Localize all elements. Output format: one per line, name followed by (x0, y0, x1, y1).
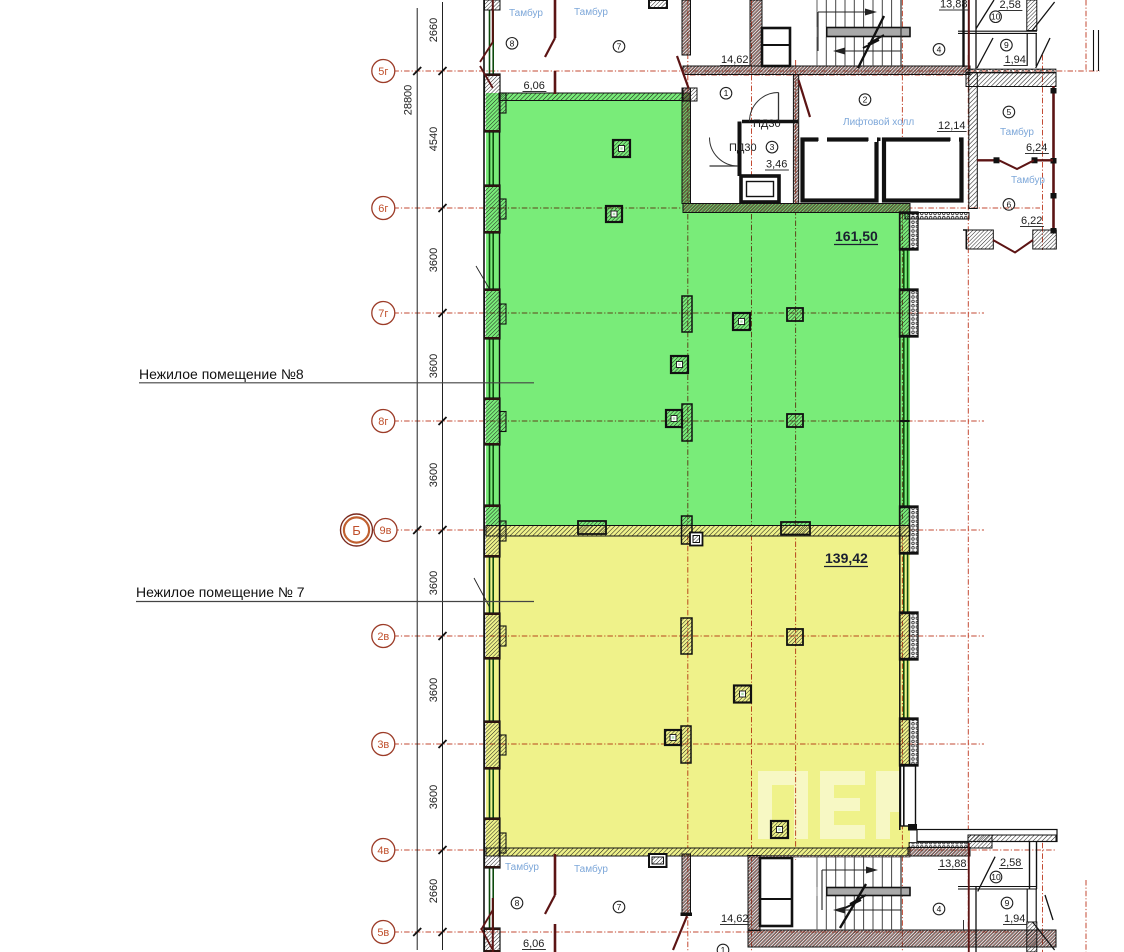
svg-text:13,88: 13,88 (939, 858, 967, 870)
svg-text:3600: 3600 (428, 785, 440, 809)
svg-text:9: 9 (1004, 40, 1009, 50)
svg-text:9: 9 (1005, 898, 1010, 908)
svg-text:6,06: 6,06 (524, 80, 545, 92)
svg-text:6,22: 6,22 (1021, 215, 1042, 227)
svg-text:Тамбур: Тамбур (574, 863, 608, 875)
svg-text:9в: 9в (380, 525, 392, 537)
svg-text:161,50: 161,50 (835, 228, 878, 244)
svg-text:1,94: 1,94 (1005, 54, 1026, 66)
svg-text:1: 1 (724, 88, 729, 98)
svg-text:ПД30: ПД30 (729, 142, 757, 154)
svg-text:3600: 3600 (428, 248, 440, 272)
svg-text:Тамбур: Тамбур (505, 861, 539, 873)
svg-text:10: 10 (991, 872, 1001, 882)
svg-text:6,24: 6,24 (1026, 142, 1047, 154)
svg-text:3в: 3в (377, 739, 389, 751)
svg-text:Лифтовой холл: Лифтовой холл (843, 116, 914, 128)
svg-text:4в: 4в (377, 845, 389, 857)
svg-text:2в: 2в (377, 631, 389, 643)
svg-text:4: 4 (937, 44, 942, 54)
svg-text:ПД30: ПД30 (753, 118, 781, 130)
svg-text:2,58: 2,58 (1000, 857, 1021, 869)
svg-text:4540: 4540 (428, 127, 440, 151)
svg-text:14,62: 14,62 (721, 54, 749, 66)
svg-text:Тамбур: Тамбур (574, 6, 608, 18)
svg-text:28800: 28800 (403, 85, 415, 116)
svg-text:6г: 6г (378, 203, 388, 215)
svg-text:12,14: 12,14 (938, 120, 966, 132)
svg-text:Тамбур: Тамбур (1000, 126, 1034, 138)
svg-text:2: 2 (863, 95, 868, 105)
svg-text:8г: 8г (378, 416, 388, 428)
svg-text:5: 5 (1007, 107, 1012, 117)
svg-text:1: 1 (721, 945, 726, 952)
svg-text:139,42: 139,42 (825, 550, 868, 566)
svg-text:10: 10 (991, 12, 1001, 22)
svg-text:Б: Б (352, 523, 361, 538)
svg-text:8: 8 (510, 38, 515, 48)
svg-text:14,62: 14,62 (721, 913, 749, 925)
svg-text:2660: 2660 (428, 879, 440, 903)
svg-text:3,46: 3,46 (766, 159, 787, 171)
svg-text:Тамбур: Тамбур (509, 7, 543, 19)
svg-text:3600: 3600 (428, 571, 440, 595)
svg-text:3600: 3600 (428, 354, 440, 378)
svg-text:3: 3 (770, 142, 775, 152)
svg-text:8: 8 (515, 898, 520, 908)
svg-text:13,88: 13,88 (940, 0, 968, 11)
svg-text:Нежилое помещение № 7: Нежилое помещение № 7 (136, 584, 305, 600)
svg-text:3600: 3600 (428, 678, 440, 702)
svg-text:7г: 7г (378, 308, 388, 320)
svg-text:6: 6 (1007, 199, 1012, 209)
svg-text:7: 7 (617, 41, 622, 51)
svg-text:4: 4 (937, 904, 942, 914)
svg-text:5г: 5г (378, 66, 388, 78)
svg-text:3600: 3600 (428, 463, 440, 487)
svg-text:6,06: 6,06 (523, 938, 544, 950)
svg-text:7: 7 (617, 902, 622, 912)
svg-text:2660: 2660 (428, 18, 440, 42)
svg-text:Тамбур: Тамбур (1011, 174, 1045, 186)
svg-text:Нежилое помещение №8: Нежилое помещение №8 (139, 366, 304, 382)
svg-text:5в: 5в (377, 927, 389, 939)
svg-text:2,58: 2,58 (1000, 0, 1021, 11)
svg-text:1,94: 1,94 (1004, 913, 1025, 925)
